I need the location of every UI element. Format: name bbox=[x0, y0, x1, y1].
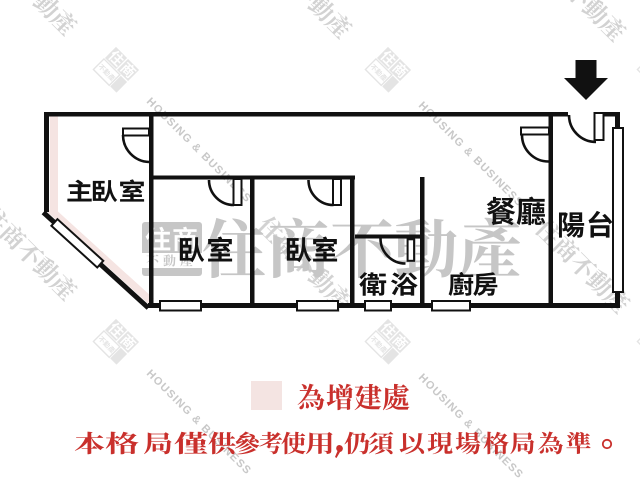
svg-text:HOUSING & BUSINESS: HOUSING & BUSINESS bbox=[144, 368, 254, 478]
svg-text:HOUSING & BUSINESS: HOUSING & BUSINESS bbox=[416, 372, 526, 480]
